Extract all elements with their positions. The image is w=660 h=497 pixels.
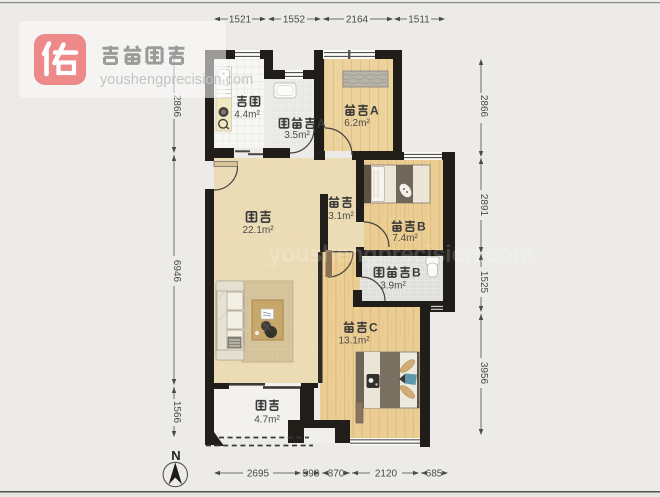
svg-text:13.1m²: 13.1m² [338, 336, 370, 347]
svg-text:685: 685 [426, 469, 443, 480]
svg-text:870: 870 [328, 469, 345, 480]
svg-text:4.4m²: 4.4m² [234, 110, 260, 121]
svg-text:3.9m²: 3.9m² [380, 281, 406, 292]
svg-text:1511: 1511 [408, 15, 430, 26]
svg-text:N: N [171, 448, 180, 463]
svg-text:2891: 2891 [478, 194, 489, 217]
svg-text:2120: 2120 [375, 469, 398, 480]
svg-text:6.2m²: 6.2m² [344, 118, 370, 129]
svg-text:4.7m²: 4.7m² [254, 415, 280, 426]
svg-text:youshengprecision.com: youshengprecision.com [268, 241, 534, 268]
svg-text:598: 598 [303, 469, 320, 480]
svg-text:2695: 2695 [247, 469, 270, 480]
svg-text:3.1m²: 3.1m² [328, 211, 354, 222]
svg-text:1525: 1525 [478, 271, 489, 294]
svg-text:22.1m²: 22.1m² [242, 225, 274, 236]
svg-text:3956: 3956 [478, 362, 489, 385]
svg-text:6946: 6946 [171, 260, 182, 283]
svg-text:youshengprecision.com: youshengprecision.com [100, 72, 253, 88]
svg-text:2164: 2164 [346, 15, 369, 26]
svg-text:2866: 2866 [171, 95, 182, 118]
svg-text:1566: 1566 [171, 401, 182, 424]
svg-text:1521: 1521 [229, 15, 252, 26]
svg-text:B: B [417, 220, 426, 234]
svg-text:1552: 1552 [283, 15, 306, 26]
svg-text:A: A [317, 117, 326, 131]
svg-text:C: C [369, 321, 378, 335]
svg-text:A: A [370, 104, 379, 118]
svg-text:2866: 2866 [478, 95, 489, 118]
svg-text:3.5m²: 3.5m² [284, 130, 310, 141]
